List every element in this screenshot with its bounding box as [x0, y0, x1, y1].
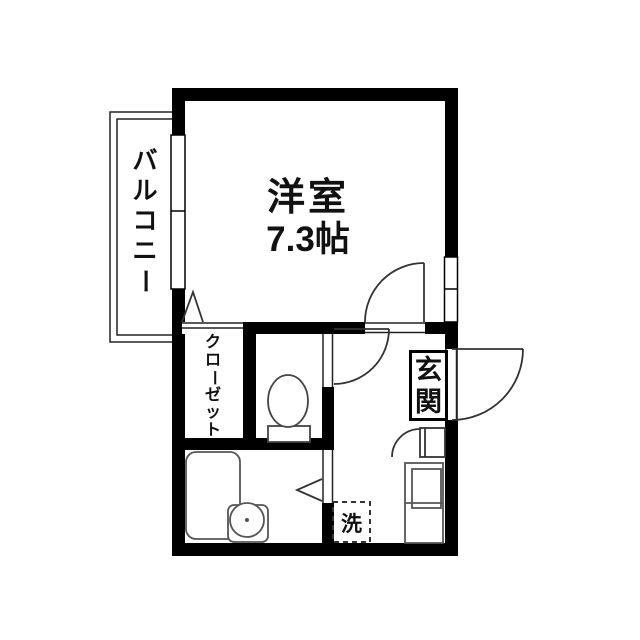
wall-top — [172, 88, 458, 101]
entrance-label-box: 玄 関 — [409, 350, 448, 421]
entrance-label-char2: 関 — [415, 386, 442, 418]
washer-label: 洗 — [333, 508, 370, 538]
main-room-size: 7.3帖 — [233, 211, 383, 262]
toilet-door — [334, 329, 389, 384]
balcony-label: バ ル コ ニ ー — [129, 146, 161, 296]
side-window — [445, 257, 458, 322]
wall-closet-toilet — [243, 322, 256, 450]
wall-bottom — [172, 543, 458, 556]
washbasin — [228, 503, 268, 542]
floor-plan: 洋室 7.3帖 バ ル コ ニ ー ク ロ ー ゼ ッ ト 玄 関 洗 — [0, 0, 640, 640]
kitchen-unit — [405, 463, 443, 543]
floor-plan-drawing — [0, 0, 640, 640]
closet-opening — [182, 322, 243, 334]
closet-door-icon — [182, 292, 203, 322]
closet-label: ク ロ ー ゼ ッ ト — [199, 334, 227, 439]
balcony-window — [171, 135, 185, 289]
bathroom-folding-door-icon — [297, 479, 322, 501]
entrance-door — [452, 349, 523, 420]
bathroom-door-opening — [322, 450, 334, 503]
toilet — [268, 375, 310, 442]
main-room-door — [365, 263, 424, 322]
toilet-door-opening — [322, 334, 334, 387]
shoe-cabinet — [392, 428, 445, 457]
main-door-opening — [365, 322, 425, 334]
entrance-label-char1: 玄 — [415, 354, 442, 386]
